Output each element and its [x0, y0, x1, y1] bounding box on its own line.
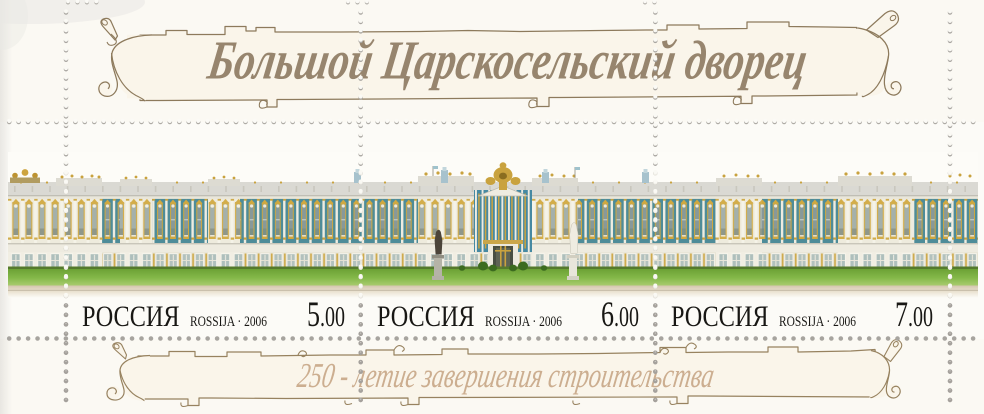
svg-text:Большой Царскосельский дворец: Большой Царскосельский дворец	[203, 30, 811, 91]
svg-text:6: 6	[601, 294, 614, 334]
svg-text:.00: .00	[908, 302, 933, 333]
svg-text:ROSSIJA · 2006: ROSSIJA · 2006	[485, 314, 562, 330]
svg-text:РОССИЯ: РОССИЯ	[377, 301, 475, 333]
svg-text:5: 5	[307, 294, 320, 334]
svg-text:РОССИЯ: РОССИЯ	[671, 301, 769, 333]
svg-text:ROSSIJA · 2006: ROSSIJA · 2006	[190, 314, 267, 330]
svg-text:7: 7	[895, 294, 908, 334]
svg-text:.00: .00	[320, 302, 345, 333]
svg-text:ROSSIJA · 2006: ROSSIJA · 2006	[779, 314, 856, 330]
svg-text:РОССИЯ: РОССИЯ	[82, 301, 180, 333]
svg-text:.00: .00	[614, 302, 639, 333]
